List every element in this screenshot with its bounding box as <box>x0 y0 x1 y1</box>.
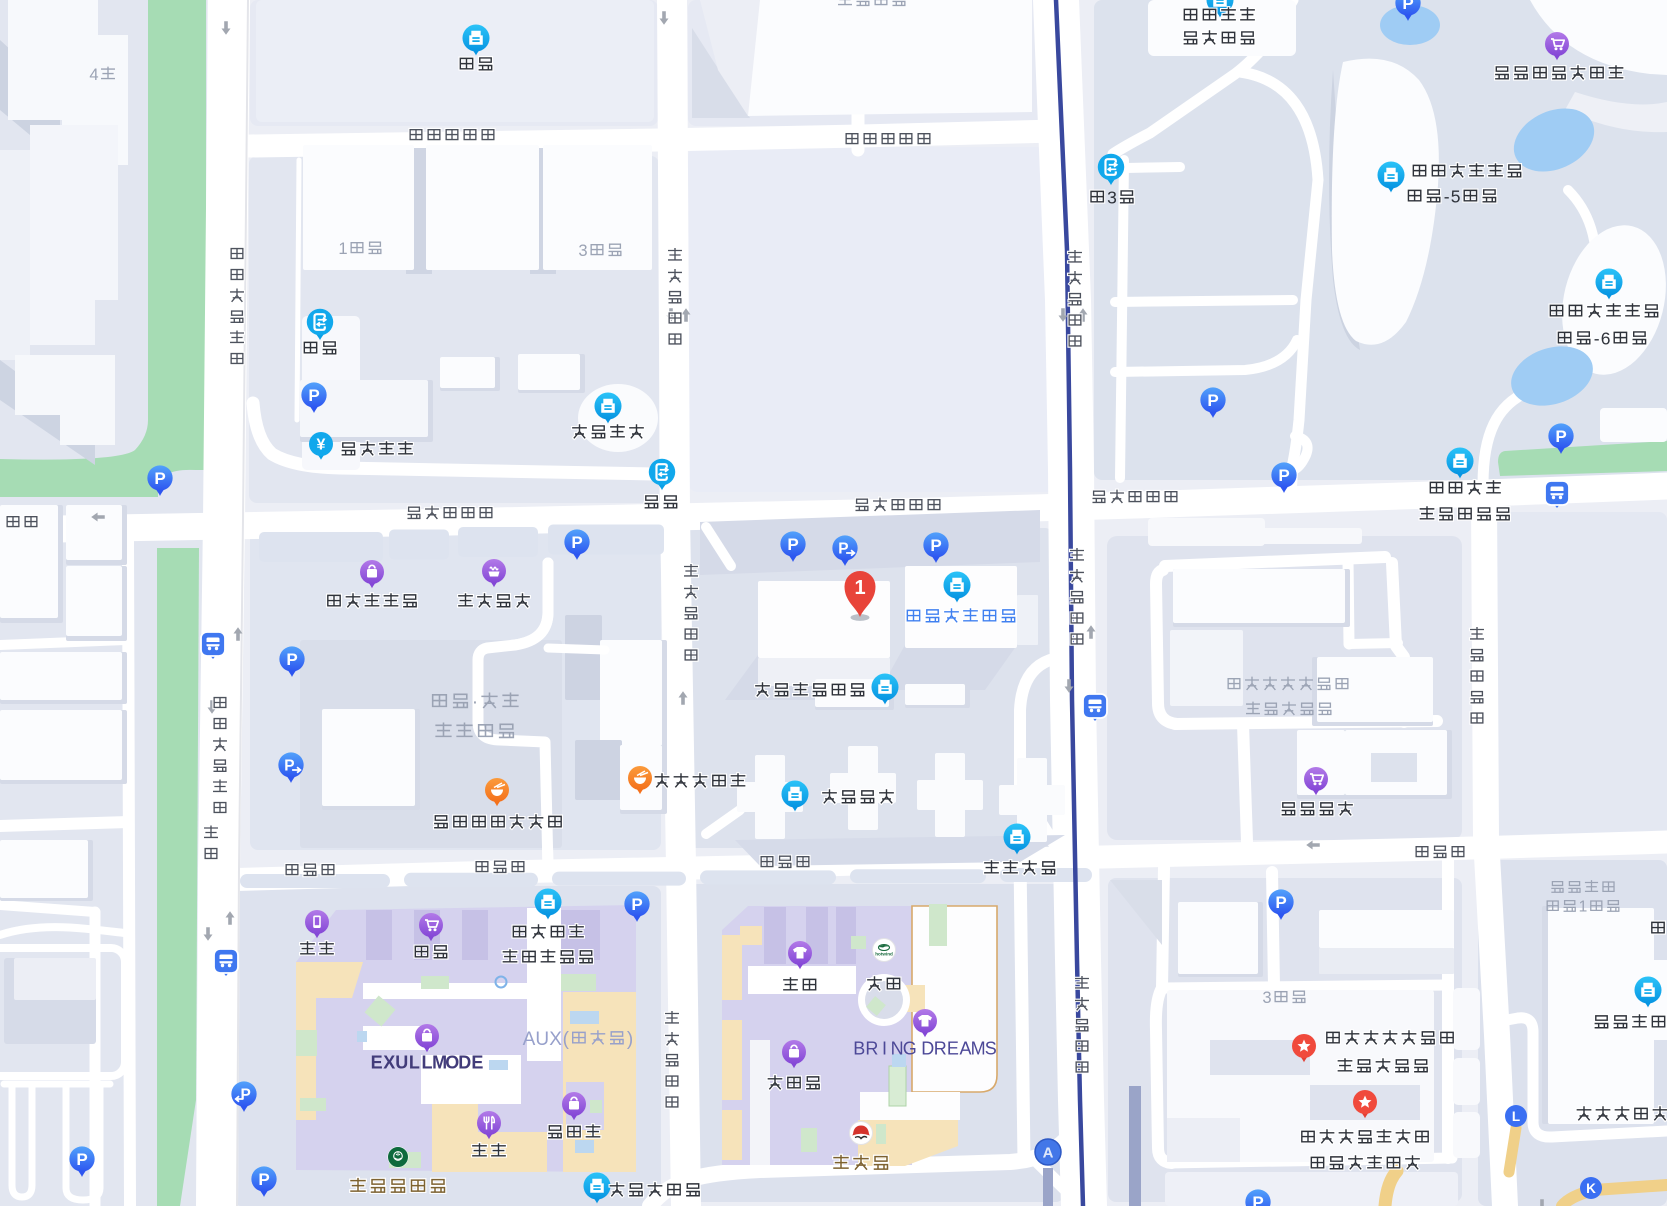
svg-text:A: A <box>1043 1145 1054 1162</box>
svg-text:E: E <box>471 1053 483 1073</box>
svg-text:B: B <box>853 1039 865 1059</box>
svg-text:X: X <box>549 1029 562 1050</box>
svg-text:L: L <box>1512 1109 1520 1124</box>
svg-text:L: L <box>409 1053 420 1073</box>
svg-text:1: 1 <box>1579 899 1588 916</box>
svg-text:3: 3 <box>578 241 587 260</box>
svg-text:A: A <box>523 1029 536 1050</box>
svg-text:N: N <box>891 1039 904 1059</box>
svg-text:): ) <box>627 1029 633 1050</box>
svg-text:(: ( <box>563 1029 570 1050</box>
svg-text:R: R <box>934 1039 947 1059</box>
svg-text:G: G <box>903 1039 917 1059</box>
svg-text:4: 4 <box>89 65 98 84</box>
svg-text:L: L <box>422 1053 433 1073</box>
svg-text:3: 3 <box>1107 187 1117 207</box>
svg-text:E: E <box>371 1053 383 1073</box>
svg-text:-: - <box>1594 328 1600 348</box>
svg-text:X: X <box>383 1053 395 1073</box>
svg-text:-: - <box>1444 186 1450 206</box>
svg-text:U: U <box>535 1029 549 1050</box>
svg-text:6: 6 <box>1601 328 1611 348</box>
svg-text:D: D <box>458 1053 471 1073</box>
svg-text:E: E <box>947 1039 959 1059</box>
svg-text:D: D <box>921 1039 934 1059</box>
svg-text:I: I <box>882 1039 887 1059</box>
svg-text:5: 5 <box>1451 186 1461 206</box>
svg-text:1: 1 <box>338 239 347 258</box>
svg-text:O: O <box>445 1053 459 1073</box>
svg-text:S: S <box>985 1039 997 1059</box>
svg-text:M: M <box>971 1039 986 1059</box>
svg-text:K: K <box>1586 1181 1596 1196</box>
svg-text:·: · <box>472 692 478 713</box>
svg-text:U: U <box>395 1053 408 1073</box>
svg-text:R: R <box>865 1039 878 1059</box>
svg-text:3: 3 <box>1262 988 1271 1007</box>
